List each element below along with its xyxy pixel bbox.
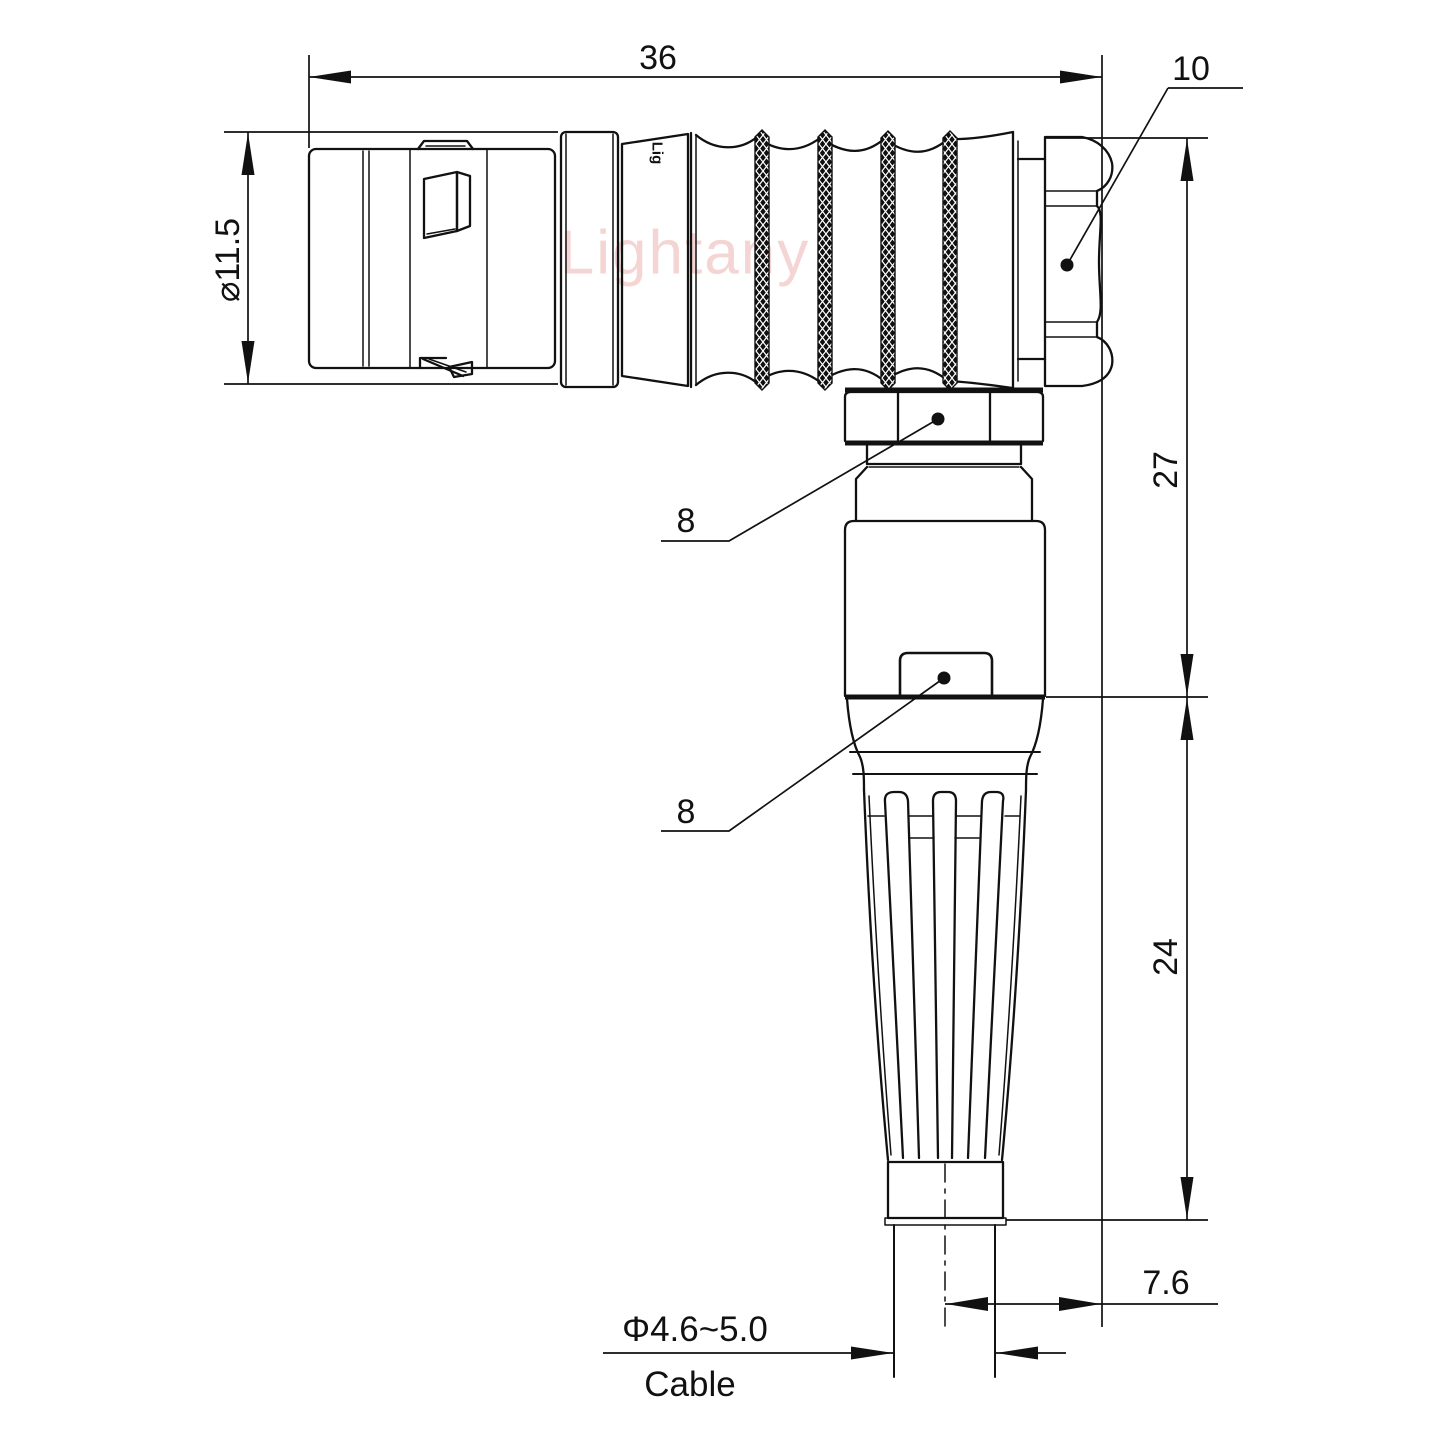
knurl-band [818,130,832,390]
boot-shoulder [847,699,1043,790]
dim-shell-diameter-label: ⌀11.5 [209,218,247,302]
knurl-band [755,130,769,390]
watermark-text: Lightany [560,219,810,288]
dim-height-lower-label: 24 [1147,938,1185,976]
knurl-band [881,131,895,390]
strain-relief-cone [864,790,1026,1160]
leader-hex-nut-label: 8 [677,502,696,540]
dim-cable-diameter: Φ4.6~5.0 Cable [603,1310,1066,1404]
drawing-canvas: Lightany Lig [0,0,1440,1440]
neck [856,443,1032,520]
connector-technical-drawing: Lightany Lig [0,0,1440,1440]
dim-cable-offset: 7.6 [945,1264,1218,1311]
latch-sleeve [309,141,555,377]
dim-shell-diameter: ⌀11.5 [209,132,558,384]
dim-height-upper-label: 27 [1147,451,1185,489]
cable-label: Cable [644,1365,735,1404]
dim-overall-length-label: 36 [639,39,677,77]
vertical-body [845,521,1045,697]
leader-body-label: 8 [677,793,696,831]
part-marking-text: Lig [649,142,666,165]
knurl-band [943,131,957,390]
dim-coupling-nut: 10 [1061,50,1244,272]
dim-heights: 27 24 [1006,138,1208,1220]
cable-lines [894,1164,995,1377]
dim-coupling-nut-label: 10 [1172,50,1210,88]
dim-cable-offset-label: 7.6 [1142,1264,1189,1302]
connector-vertical-section [845,390,1045,1377]
dim-cable-diameter-label: Φ4.6~5.0 [622,1310,768,1349]
